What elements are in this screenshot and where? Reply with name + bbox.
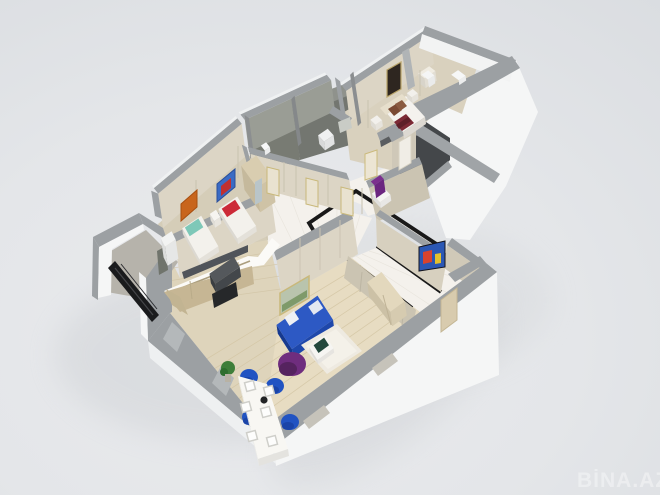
svg-text:BİNA.AZ: BİNA.AZ <box>577 469 660 492</box>
